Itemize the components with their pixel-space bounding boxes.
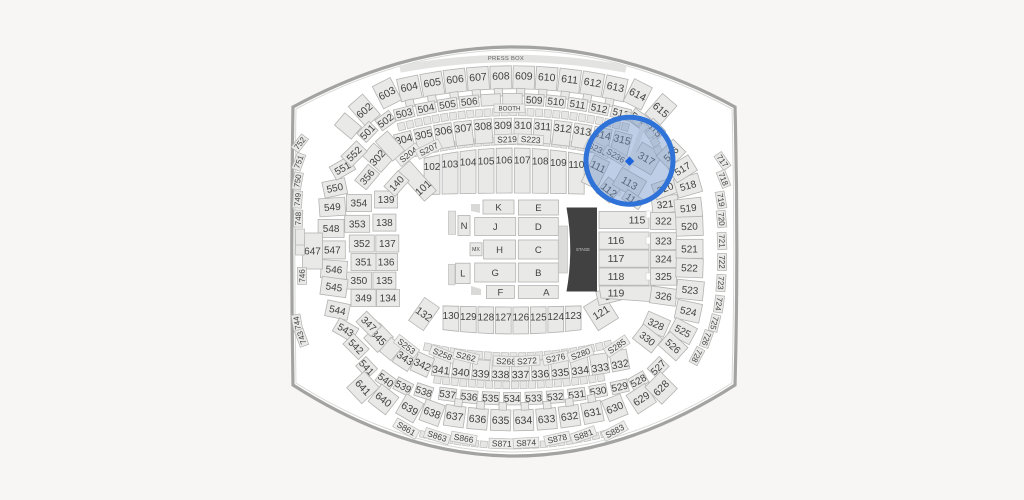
svg-text:BOOTH: BOOTH (498, 105, 520, 112)
svg-text:720: 720 (716, 212, 726, 227)
svg-text:130: 130 (443, 311, 460, 322)
svg-text:336: 336 (531, 368, 549, 381)
svg-text:E: E (535, 203, 541, 214)
svg-text:723: 723 (716, 276, 726, 290)
svg-text:549: 549 (324, 202, 342, 214)
svg-text:548: 548 (323, 224, 340, 235)
svg-text:311: 311 (534, 120, 552, 133)
svg-text:334: 334 (571, 364, 590, 378)
svg-text:118: 118 (608, 271, 625, 283)
svg-text:636: 636 (468, 413, 487, 426)
svg-text:506: 506 (460, 96, 478, 109)
svg-text:S874: S874 (516, 437, 537, 448)
svg-text:S272: S272 (517, 355, 538, 366)
svg-text:S219: S219 (497, 134, 517, 145)
svg-text:J: J (493, 222, 498, 233)
svg-text:608: 608 (492, 70, 510, 82)
svg-text:115: 115 (629, 215, 646, 227)
svg-text:351: 351 (355, 258, 372, 269)
svg-text:105: 105 (478, 156, 495, 167)
svg-text:G: G (492, 268, 499, 279)
svg-text:124: 124 (547, 312, 564, 323)
svg-text:521: 521 (681, 244, 698, 255)
svg-text:509: 509 (526, 95, 544, 107)
svg-text:349: 349 (355, 293, 372, 304)
svg-text:611: 611 (561, 73, 579, 87)
svg-text:B: B (535, 268, 541, 279)
svg-text:606: 606 (446, 73, 465, 87)
svg-text:722: 722 (717, 255, 726, 269)
svg-text:308: 308 (474, 120, 492, 133)
svg-text:107: 107 (514, 156, 531, 167)
svg-text:520: 520 (681, 221, 698, 233)
svg-text:K: K (495, 202, 502, 213)
svg-text:S268: S268 (496, 356, 516, 367)
svg-text:609: 609 (515, 70, 533, 82)
svg-text:607: 607 (469, 71, 487, 84)
svg-text:136: 136 (378, 258, 395, 269)
svg-text:510: 510 (547, 96, 565, 109)
svg-text:A: A (543, 287, 550, 298)
svg-text:S871: S871 (492, 438, 512, 449)
svg-text:322: 322 (655, 217, 672, 228)
svg-text:108: 108 (532, 156, 549, 167)
svg-text:138: 138 (376, 218, 393, 229)
svg-text:129: 129 (460, 312, 477, 323)
svg-text:519: 519 (680, 203, 698, 216)
svg-text:325: 325 (655, 272, 672, 283)
svg-text:339: 339 (472, 368, 490, 381)
svg-text:128: 128 (477, 312, 494, 323)
svg-text:746: 746 (298, 269, 307, 283)
svg-text:123: 123 (565, 311, 582, 322)
svg-text:335: 335 (551, 366, 570, 379)
svg-text:119: 119 (608, 288, 625, 300)
svg-text:350: 350 (351, 276, 368, 287)
svg-text:632: 632 (560, 410, 579, 424)
svg-text:610: 610 (537, 71, 555, 84)
svg-text:117: 117 (608, 253, 625, 265)
svg-text:PRESS BOX: PRESS BOX (488, 56, 524, 62)
svg-text:STAGE: STAGE (576, 247, 590, 252)
svg-text:321: 321 (656, 199, 674, 212)
svg-text:633: 633 (537, 413, 556, 426)
svg-text:N: N (461, 221, 468, 232)
svg-text:354: 354 (351, 199, 368, 210)
svg-text:109: 109 (550, 158, 567, 169)
svg-text:647: 647 (304, 247, 321, 258)
svg-text:D: D (535, 222, 542, 233)
svg-text:C: C (535, 245, 542, 256)
svg-text:536: 536 (460, 391, 478, 403)
svg-text:135: 135 (376, 276, 393, 287)
svg-text:635: 635 (492, 415, 510, 428)
svg-text:523: 523 (681, 285, 699, 298)
svg-text:F: F (497, 287, 503, 298)
svg-text:310: 310 (514, 120, 532, 132)
svg-text:341: 341 (431, 364, 450, 378)
svg-text:634: 634 (515, 415, 533, 427)
svg-text:352: 352 (353, 239, 370, 250)
svg-text:537: 537 (438, 389, 456, 402)
svg-text:126: 126 (512, 313, 529, 324)
svg-text:353: 353 (349, 219, 366, 230)
svg-text:106: 106 (496, 156, 513, 167)
svg-text:134: 134 (380, 294, 397, 305)
svg-text:309: 309 (494, 120, 512, 132)
svg-text:125: 125 (530, 312, 547, 323)
svg-text:312: 312 (553, 122, 572, 136)
svg-text:104: 104 (460, 158, 477, 169)
svg-text:S223: S223 (520, 134, 541, 145)
svg-text:324: 324 (655, 255, 672, 266)
svg-text:103: 103 (442, 160, 459, 171)
svg-text:637: 637 (445, 410, 464, 424)
svg-text:547: 547 (324, 245, 341, 256)
svg-text:137: 137 (379, 239, 396, 250)
svg-text:340: 340 (452, 366, 471, 380)
svg-text:116: 116 (608, 235, 625, 247)
svg-text:749: 749 (293, 192, 303, 206)
svg-text:337: 337 (512, 369, 530, 381)
svg-text:110: 110 (568, 160, 584, 171)
svg-text:721: 721 (717, 234, 727, 248)
svg-text:522: 522 (681, 263, 698, 275)
svg-text:127: 127 (495, 313, 512, 324)
svg-text:546: 546 (325, 264, 343, 276)
svg-text:102: 102 (424, 162, 441, 173)
svg-text:MX: MX (472, 247, 480, 253)
svg-text:H: H (496, 245, 503, 256)
svg-text:L: L (460, 269, 465, 280)
svg-text:307: 307 (454, 122, 473, 136)
svg-text:338: 338 (492, 369, 510, 381)
svg-text:139: 139 (378, 195, 395, 206)
svg-text:724: 724 (713, 297, 724, 312)
svg-text:748: 748 (294, 211, 303, 225)
svg-text:323: 323 (655, 237, 672, 248)
